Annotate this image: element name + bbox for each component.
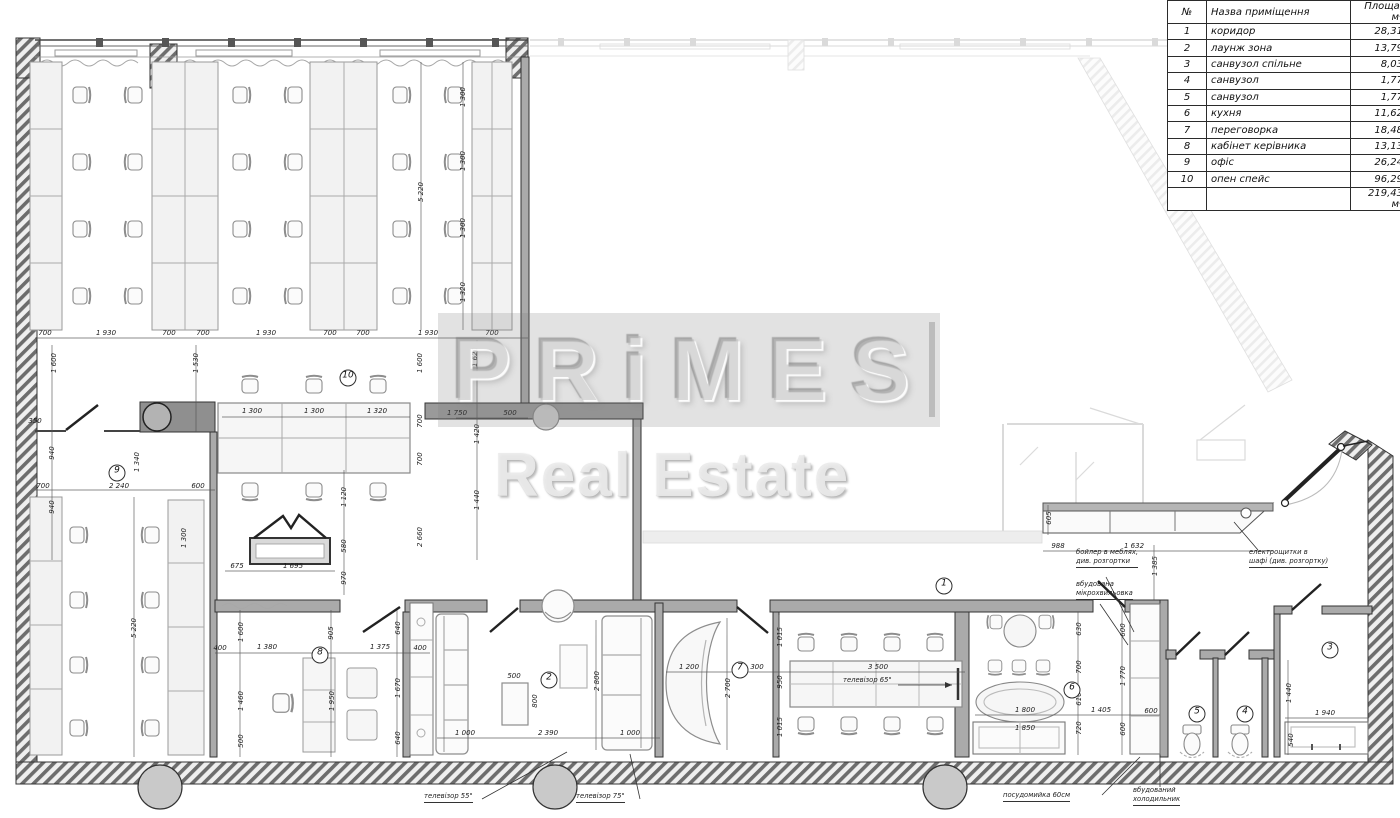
- legend-header-area: Площа, м²: [1351, 1, 1400, 24]
- legend-cell-name: кабінет керівника: [1207, 138, 1351, 154]
- radiator: [55, 50, 480, 56]
- legend-cell-num: 1: [1168, 24, 1207, 40]
- legend-cell-area: 28,31: [1351, 24, 1400, 40]
- legend-cell-area: 8,03: [1351, 56, 1400, 72]
- legend-row: 1коридор28,31: [1168, 24, 1400, 40]
- curtain-wavy-line: [40, 60, 505, 66]
- legend-empty-cell: [1168, 187, 1207, 210]
- legend-cell-name: санвузол: [1207, 89, 1351, 105]
- legend-row: 8кабінет керівника13,13: [1168, 138, 1400, 154]
- open-space-desks: [30, 62, 512, 330]
- office-desks: [30, 497, 204, 755]
- legend-cell-num: 7: [1168, 122, 1207, 138]
- legend-cell-area: 11,62: [1351, 105, 1400, 121]
- legend-cell-area: 13,79: [1351, 40, 1400, 56]
- legend-cell-name: коридор: [1207, 24, 1351, 40]
- shared-table: [218, 376, 410, 501]
- legend-total-area: 219,43 м²: [1351, 187, 1400, 210]
- legend-row: 7переговорка18,48: [1168, 122, 1400, 138]
- legend-cell-name: офіс: [1207, 155, 1351, 171]
- legend-cell-num: 3: [1168, 56, 1207, 72]
- legend-cell-num: 2: [1168, 40, 1207, 56]
- legend-cell-area: 96,29: [1351, 171, 1400, 187]
- legend-total-row: 219,43 м²: [1168, 187, 1400, 210]
- kitchen-furniture: [973, 604, 1160, 754]
- legend-cell-num: 6: [1168, 105, 1207, 121]
- legend-header-num: №: [1168, 1, 1207, 24]
- watermark-logo-bar: [929, 322, 935, 417]
- legend-cell-num: 5: [1168, 89, 1207, 105]
- window-band: [35, 38, 528, 66]
- legend-cell-area: 26,24: [1351, 155, 1400, 171]
- legend-row: 2лаунж зона13,79: [1168, 40, 1400, 56]
- legend-header-row: № Назва приміщення Площа, м²: [1168, 1, 1400, 24]
- legend-header-name: Назва приміщення: [1207, 1, 1351, 24]
- open-space-chairs: [73, 87, 462, 304]
- legend-cell-name: опен спейс: [1207, 171, 1351, 187]
- wardrobe-cabinet: [410, 603, 433, 755]
- legend-row: 4санвузол1,77: [1168, 73, 1400, 89]
- legend-row: 10опен спейс96,29: [1168, 171, 1400, 187]
- legend-empty-cell: [1207, 187, 1351, 210]
- legend-cell-area: 1,77: [1351, 73, 1400, 89]
- floorplan-page: 7001 9307007001 9307007001 9307001 6001 …: [0, 0, 1400, 818]
- legend-cell-area: 1,77: [1351, 89, 1400, 105]
- legend-row: 9офіс26,24: [1168, 155, 1400, 171]
- legend-cell-name: переговорка: [1207, 122, 1351, 138]
- director-office-furniture: [273, 658, 377, 752]
- legend-row: 5санвузол1,77: [1168, 89, 1400, 105]
- watermark-logo-text: PRiMES: [452, 316, 932, 424]
- legend-cell-num: 9: [1168, 155, 1207, 171]
- legend-cell-name: санвузол спільне: [1207, 56, 1351, 72]
- watermark-subtitle-text: Real Estate: [494, 440, 850, 511]
- legend-cell-num: 8: [1168, 138, 1207, 154]
- legend-cell-area: 13,13: [1351, 138, 1400, 154]
- lounge-chair-tent: [250, 515, 330, 564]
- legend-cell-area: 18,48: [1351, 122, 1400, 138]
- meeting-room-furniture: [790, 634, 962, 735]
- legend-cell-num: 10: [1168, 171, 1207, 187]
- office-chairs: [70, 527, 159, 736]
- legend-cell-num: 4: [1168, 73, 1207, 89]
- legend-row: 3санвузол спільне8,03: [1168, 56, 1400, 72]
- legend-cell-name: санвузол: [1207, 73, 1351, 89]
- legend-cell-name: лаунж зона: [1207, 40, 1351, 56]
- room-legend-table: № Назва приміщення Площа, м² 1коридор28,…: [1167, 0, 1400, 211]
- legend-row: 6кухня11,62: [1168, 105, 1400, 121]
- legend-cell-name: кухня: [1207, 105, 1351, 121]
